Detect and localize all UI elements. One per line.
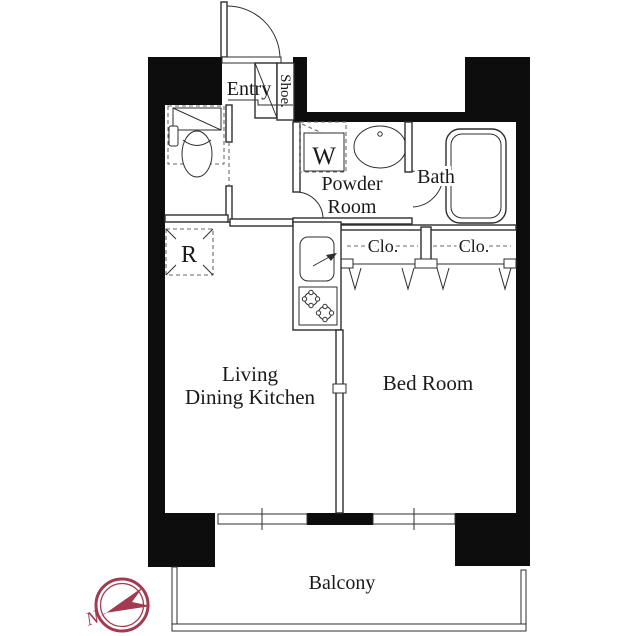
balcony-label: Balcony: [309, 572, 376, 594]
powder-room-label-line2: Room: [328, 196, 377, 218]
hallway-ldk-door: [230, 219, 293, 226]
compass-icon: N: [82, 579, 151, 631]
closet-right-label: Clo.: [459, 236, 490, 256]
wall-top-band: [293, 112, 530, 122]
toilet-flush-handle: [169, 126, 178, 146]
burner-petal: [329, 311, 333, 315]
refrigerator-label: R: [181, 242, 197, 268]
window-bedroom: [373, 508, 455, 530]
closets: Clo. Clo.: [341, 225, 516, 289]
wc-wall-upper: [226, 105, 232, 142]
toilet-bowl: [182, 131, 212, 177]
wall-top-right-block: [465, 57, 530, 112]
washer-label: W: [312, 143, 336, 170]
toilet-room: [165, 105, 232, 222]
entry-threshold: [222, 57, 281, 63]
powder-room-label-line1: Powder: [321, 173, 382, 195]
balcony-railing-right: [521, 570, 526, 624]
basin-bowl: [354, 126, 406, 168]
balcony-railing-left: [172, 567, 177, 624]
burner-petal: [309, 290, 313, 294]
wall-right: [516, 112, 530, 513]
wall-bottom-left-block: [148, 513, 215, 567]
closet-divider: [421, 227, 431, 263]
burner-petal: [309, 303, 313, 307]
entry-door: [221, 2, 281, 63]
bath-label: Bath: [417, 166, 455, 188]
refrigerator-box: R: [166, 229, 213, 275]
partition-wall: [336, 330, 343, 513]
wc-bottom-wall: [165, 215, 228, 222]
burner-petal: [323, 317, 327, 321]
powder-room: W Powder Room: [293, 122, 412, 224]
ldk-bedroom-partition: [333, 330, 346, 513]
kitchen: [293, 222, 341, 330]
shoe-label: Shoe.: [277, 74, 293, 108]
closet-stub-left: [341, 259, 353, 268]
stove-icon: [299, 287, 337, 325]
bath-divider-wall: [405, 122, 412, 172]
folding-door-icon: [499, 268, 511, 289]
window-ldk: [218, 508, 307, 530]
folding-door-icon: [402, 268, 414, 289]
bedroom-label: Bed Room: [383, 371, 473, 395]
closet-left-label: Clo.: [368, 236, 399, 256]
ldk-label-line1: Living: [222, 362, 278, 386]
refrigerator-corner-mark: [203, 229, 213, 239]
wall-shoe-right: [293, 57, 307, 117]
ldk-label-line2: Dining Kitchen: [185, 385, 316, 409]
entry-door-arc: [227, 6, 280, 57]
kitchen-sink-icon: [300, 237, 337, 281]
powder-door-arc: [296, 192, 323, 219]
balcony-railing-bottom: [172, 624, 526, 631]
washing-machine-icon: W: [300, 122, 346, 172]
stove-box: [299, 287, 337, 325]
floor-plan-page: Shoe. Entry W: [0, 0, 626, 636]
sliding-door-handle: [333, 384, 346, 393]
burner-petal: [315, 297, 319, 301]
floorplan-svg: Shoe. Entry W: [0, 0, 626, 636]
folding-door-icon: [349, 268, 361, 289]
folding-door-icon: [437, 268, 449, 289]
refrigerator-corner-mark: [166, 229, 176, 239]
entry-label: Entry: [227, 78, 271, 100]
burner-petal: [302, 297, 306, 301]
burner-petal: [323, 304, 327, 308]
bath-room: Bath: [405, 122, 506, 223]
closet-stub-right: [504, 259, 516, 268]
bathtub-icon: [446, 129, 506, 223]
burner-petal: [316, 311, 320, 315]
wall-bottom-right-block: [455, 513, 530, 566]
wall-bottom-center: [307, 513, 373, 525]
wall-left: [148, 57, 165, 513]
powder-west-wall: [293, 122, 300, 192]
entry-door-leaf: [221, 2, 227, 57]
bathtub-inner: [451, 134, 501, 218]
basin-icon: [354, 126, 406, 168]
toilet-icon: [168, 106, 224, 177]
refrigerator-corner-mark: [203, 265, 213, 275]
balcony: Balcony: [172, 567, 526, 631]
refrigerator-corner-mark: [166, 265, 176, 275]
kitchen-sink: [300, 237, 334, 281]
closet-stub-middle: [415, 259, 437, 268]
